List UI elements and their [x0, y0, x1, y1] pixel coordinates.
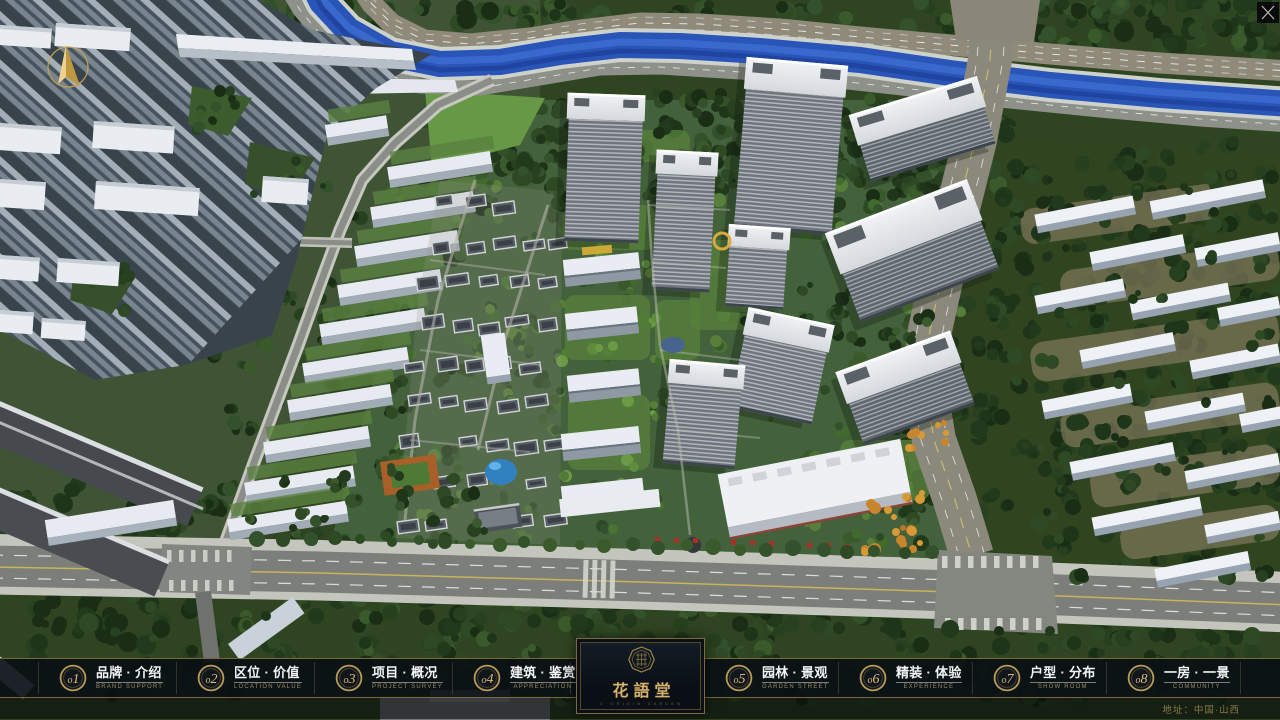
svg-text:o5: o5	[734, 672, 746, 687]
svg-text:o4: o4	[482, 672, 494, 687]
svg-text:o3: o3	[344, 672, 356, 687]
svg-text:o1: o1	[68, 672, 80, 687]
svg-text:o2: o2	[206, 672, 218, 687]
svg-text:o6: o6	[868, 672, 880, 687]
svg-text:o7: o7	[1002, 672, 1015, 687]
svg-text:o8: o8	[1136, 672, 1148, 687]
